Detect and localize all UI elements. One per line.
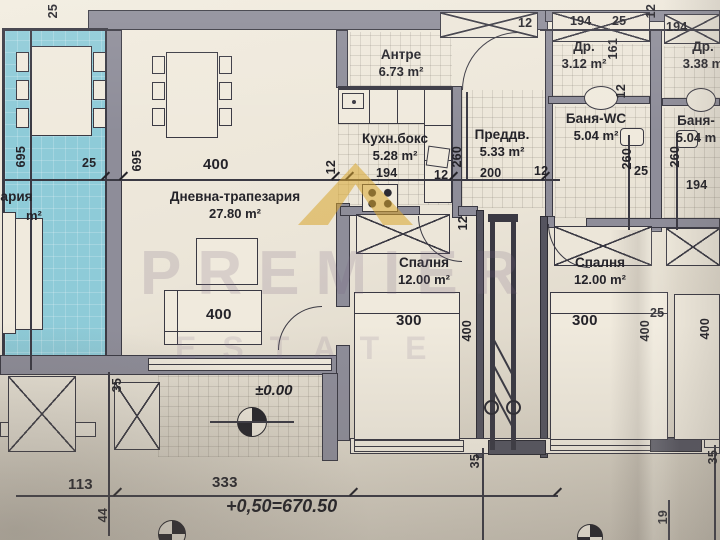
elevation-marker-line bbox=[210, 421, 294, 423]
floor-plan-photo: 25 695 25 695 400 12 194 12 200 12 260 1… bbox=[0, 0, 720, 540]
dining-table-terrace bbox=[30, 46, 92, 136]
dim-label: 194 bbox=[376, 166, 397, 180]
column-bottom-1 bbox=[488, 440, 546, 455]
window-box-left bbox=[8, 376, 76, 452]
chair bbox=[93, 108, 106, 128]
dim-label: 113 bbox=[68, 476, 93, 493]
room-area: 3.12 m² bbox=[552, 56, 616, 73]
watermark-brand: PREMIER bbox=[140, 238, 534, 309]
window-bedroom2 bbox=[550, 439, 652, 451]
dim-label: 400 bbox=[203, 156, 229, 173]
dresser-bedroom2 bbox=[674, 294, 720, 440]
terrace-sofa-back bbox=[2, 212, 16, 334]
dim-label: 400 bbox=[638, 320, 652, 341]
dim-label: 333 bbox=[212, 474, 238, 491]
dim-label: 19 bbox=[656, 510, 670, 524]
floor-plan: 25 695 25 695 400 12 194 12 200 12 260 1… bbox=[0, 0, 720, 540]
shaft-vent bbox=[484, 400, 499, 415]
wall-terrace-living bbox=[106, 30, 122, 372]
chair bbox=[152, 82, 165, 100]
dim-label: 12 bbox=[434, 168, 448, 182]
chair bbox=[16, 80, 29, 100]
elevation-marker bbox=[577, 524, 603, 540]
room-label-hall: Преддв. 5.33 m² bbox=[456, 126, 548, 160]
room-area: 27.80 m² bbox=[140, 206, 330, 223]
bath2-sink bbox=[686, 88, 716, 112]
dim-label: 35 bbox=[706, 450, 720, 464]
counter-divider bbox=[397, 90, 398, 123]
room-area: 6.73 m² bbox=[352, 64, 450, 81]
shaft-cap bbox=[488, 214, 518, 222]
wall-hall-bedroom1-b bbox=[458, 206, 478, 216]
chair bbox=[219, 82, 232, 100]
dim-label: 25 bbox=[650, 306, 664, 320]
window-midline bbox=[551, 445, 651, 446]
dim-label: 35 bbox=[468, 454, 482, 468]
room-name: Др. bbox=[552, 38, 616, 56]
dim-label: 25 bbox=[46, 4, 60, 18]
dim-label: 695 bbox=[14, 146, 28, 167]
dim-label: 12 bbox=[614, 84, 628, 98]
dim-label: 194 bbox=[666, 20, 687, 34]
room-name: Баня-WC bbox=[548, 110, 644, 128]
room-label-closet2: Др. 3.38 m bbox=[668, 38, 720, 72]
room-name: Баня- bbox=[660, 112, 720, 130]
dim-label: 400 bbox=[460, 320, 474, 341]
elevation-label-entry: +0,50=670.50 bbox=[226, 496, 337, 517]
dim-label: 300 bbox=[396, 312, 422, 329]
dim-label: 194 bbox=[686, 178, 707, 192]
dim-label: 260 bbox=[668, 146, 682, 167]
dim-line-bedroom1-lower bbox=[482, 448, 484, 540]
room-name: Преддв. bbox=[456, 126, 548, 144]
room-area: 5.33 m² bbox=[456, 144, 548, 161]
room-label-living: Дневна-трапезария 27.80 m² bbox=[140, 188, 330, 222]
room-name: Спалня bbox=[542, 254, 658, 272]
chair bbox=[16, 108, 29, 128]
dim-label: 12 bbox=[324, 160, 338, 174]
elevation-marker bbox=[158, 520, 186, 540]
dim-label: 300 bbox=[572, 312, 598, 329]
bath1-sink bbox=[584, 86, 618, 110]
window-bedroom1 bbox=[354, 440, 464, 452]
dim-label: 25 bbox=[612, 14, 626, 28]
room-area: 5.28 m² bbox=[338, 148, 452, 165]
dim-label: 400 bbox=[698, 318, 712, 339]
room-area: 5.04 m² bbox=[548, 128, 644, 145]
shaft-vent bbox=[506, 400, 521, 415]
room-label-bedroom2: Спалня 12.00 m² bbox=[542, 254, 658, 288]
dim-label: 12 bbox=[518, 16, 532, 30]
dining-table-living bbox=[166, 52, 218, 138]
watermark-sub: ESTATE bbox=[175, 330, 452, 367]
chair bbox=[16, 52, 29, 72]
chair bbox=[93, 80, 106, 100]
chair bbox=[219, 56, 232, 74]
room-label-kitchen: Кухн.бокс 5.28 m² bbox=[338, 130, 452, 164]
room-area: 5.04 m bbox=[660, 130, 720, 147]
room-label-closet1: Др. 3.12 m² bbox=[552, 38, 616, 72]
dim-label: 12 bbox=[456, 216, 470, 230]
room-name: Кухн.бокс bbox=[338, 130, 452, 148]
door-arc-entry bbox=[462, 32, 518, 90]
counter-divider bbox=[425, 125, 451, 126]
counter-divider bbox=[369, 90, 370, 123]
dim-label: 12 bbox=[644, 4, 658, 18]
wardrobe-bedroom2-b bbox=[666, 228, 720, 266]
chair bbox=[152, 108, 165, 126]
dim-label: 12 bbox=[534, 164, 548, 178]
room-label-bath2: Баня- 5.04 m bbox=[660, 112, 720, 146]
chair bbox=[219, 108, 232, 126]
room-area: 3.38 m bbox=[668, 56, 720, 73]
terrace-sofa-seat bbox=[15, 218, 43, 330]
window-midline bbox=[355, 446, 463, 447]
wall-shaft-right bbox=[540, 216, 548, 458]
elevation-label-zero: ±0.00 bbox=[255, 382, 292, 399]
wall-antre-left bbox=[336, 30, 348, 88]
room-name: Антре bbox=[352, 46, 450, 64]
room-label-antre: Антре 6.73 m² bbox=[352, 46, 450, 80]
dim-label: 25 bbox=[82, 156, 96, 170]
chair bbox=[93, 52, 106, 72]
room-label-bath1: Баня-WC 5.04 m² bbox=[548, 110, 644, 144]
wall-terrace-top bbox=[2, 28, 108, 30]
dim-label: 194 bbox=[570, 14, 591, 28]
dim-line-main-horizontal bbox=[4, 179, 560, 181]
dim-line-top-right bbox=[540, 29, 720, 31]
sink-drain bbox=[352, 100, 356, 104]
room-name: Др. bbox=[668, 38, 720, 56]
dim-label: 25 bbox=[634, 164, 648, 178]
room-name: Дневна-трапезария bbox=[140, 188, 330, 206]
kitchen-sink bbox=[342, 93, 364, 109]
room-area-terrace: m² bbox=[26, 208, 42, 225]
room-label-terrace: трапезария bbox=[0, 188, 33, 206]
room-area: 12.00 m² bbox=[542, 272, 658, 289]
dim-label: 695 bbox=[130, 150, 144, 171]
dim-label: 260 bbox=[620, 148, 634, 169]
chair bbox=[152, 56, 165, 74]
wall-entrance bbox=[322, 373, 338, 461]
dim-label: 44 bbox=[96, 508, 110, 522]
dim-label: 35 bbox=[110, 378, 124, 392]
dim-label: 200 bbox=[480, 166, 501, 180]
